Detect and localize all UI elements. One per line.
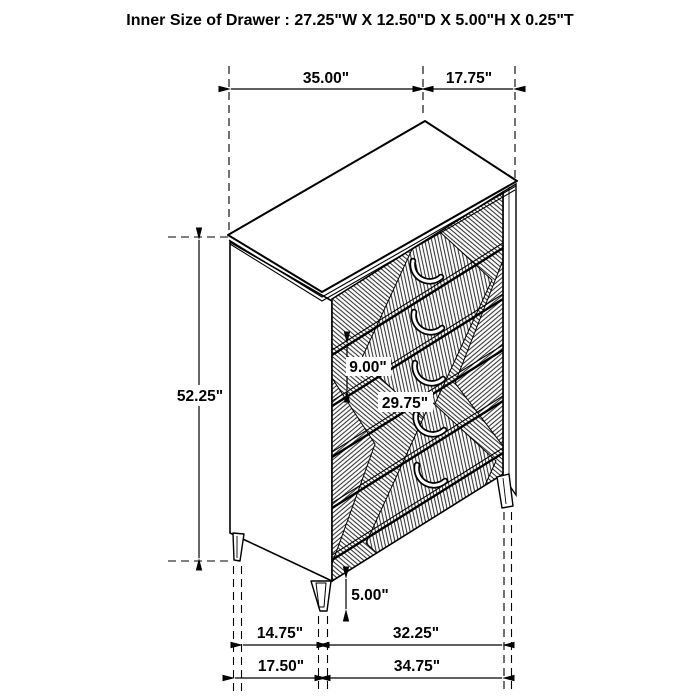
dim-overall-height: 52.25" [172,240,227,558]
dim-label-inner-width: 29.75" [382,395,428,412]
dim-top-depth: 17.75" [425,70,513,89]
dim-base-depth: 34.75" [327,658,502,678]
dim-label-base-width: 17.50" [258,658,304,675]
dim-base-width: 17.50" [235,658,318,678]
dim-label-leg-height: 5.00" [351,587,389,604]
dim-front-leg-span: 14.75" [243,625,317,645]
dim-inner-width: 29.75" [378,392,433,412]
dim-leg-height: 5.00" [346,579,391,609]
dim-label-front-leg-span: 14.75" [257,625,303,642]
dim-label-top-width: 35.00" [303,70,349,87]
dim-label-drawer-front-height: 9.00" [349,359,387,376]
front-leg [311,581,331,611]
page-title: Inner Size of Drawer : 27.25"W X 12.50"D… [126,12,574,29]
dim-top-width: 35.00" [231,70,421,89]
dim-label-top-depth: 17.75" [446,70,492,87]
dim-label-base-depth: 34.75" [394,658,440,675]
dim-side-leg-span: 32.25" [329,625,502,645]
dim-label-side-leg-span: 32.25" [393,625,439,642]
left-leg [233,533,244,561]
chest-dimension-diagram: Inner Size of Drawer : 27.25"W X 12.50"D… [0,0,700,700]
chest-right-side-edge [503,184,516,495]
chest-dimension-diagram-page: Inner Size of Drawer : 27.25"W X 12.50"D… [0,0,700,700]
chest-left-side-panel [230,242,332,581]
dim-label-overall-height: 52.25" [177,388,223,405]
